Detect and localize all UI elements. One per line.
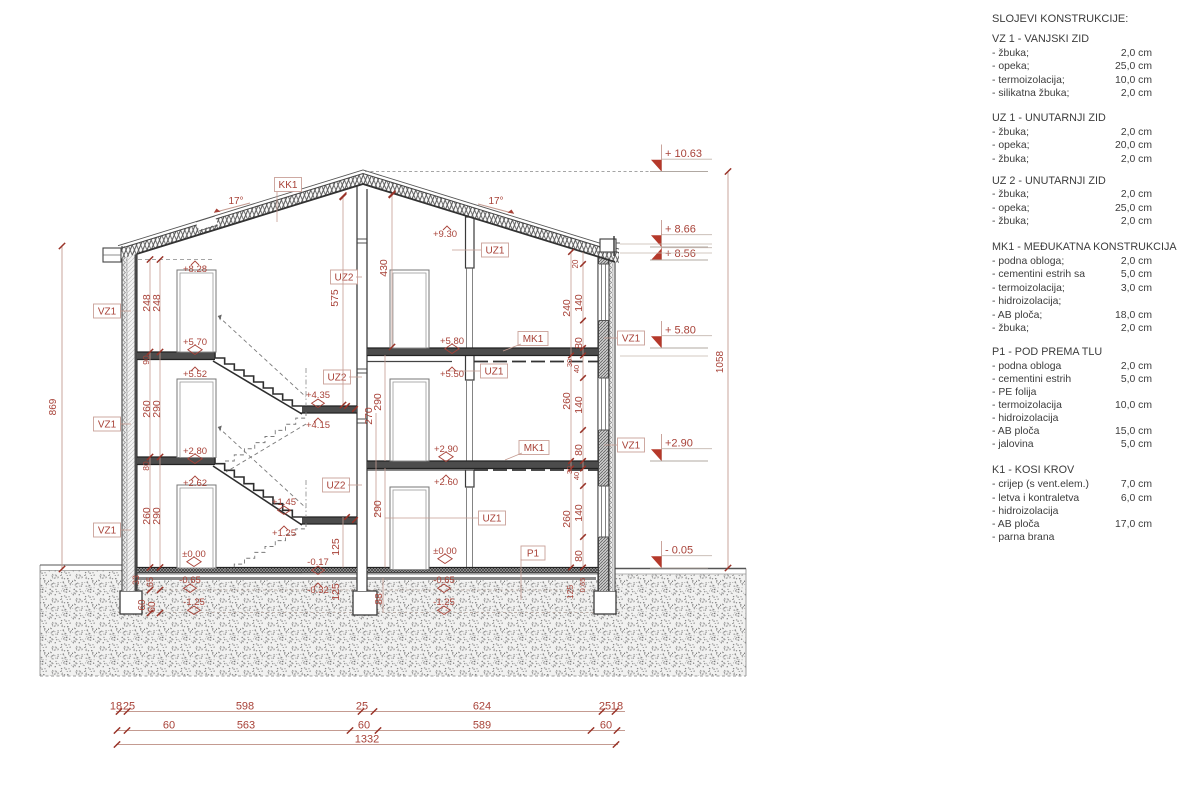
svg-text:248: 248	[151, 294, 163, 312]
svg-text:VZ1: VZ1	[98, 526, 117, 537]
svg-text:- AB ploča;: - AB ploča;	[992, 310, 1042, 321]
svg-text:10,0 cm: 10,0 cm	[1115, 75, 1152, 86]
svg-text:- hidroizolacija;: - hidroizolacija;	[992, 296, 1061, 307]
svg-text:25,0 cm: 25,0 cm	[1115, 203, 1152, 214]
svg-text:UZ 1 - UNUTARNJI ZID: UZ 1 - UNUTARNJI ZID	[992, 112, 1106, 124]
svg-text:- hidroizolacija: - hidroizolacija	[992, 413, 1059, 424]
svg-text:MK1: MK1	[524, 443, 545, 454]
svg-text:80: 80	[573, 444, 585, 456]
svg-text:- žbuka;: - žbuka;	[992, 189, 1029, 200]
svg-text:- AB ploča: - AB ploča	[992, 426, 1040, 437]
svg-text:VZ1: VZ1	[622, 334, 641, 345]
svg-text:140: 140	[573, 396, 585, 414]
svg-text:2,0 cm: 2,0 cm	[1121, 256, 1152, 267]
svg-text:UZ 2 - UNUTARNJI ZID: UZ 2 - UNUTARNJI ZID	[992, 175, 1106, 187]
svg-text:+2.62: +2.62	[183, 478, 207, 489]
svg-text:- opeka;: - opeka;	[992, 203, 1030, 214]
svg-text:25: 25	[123, 701, 135, 713]
svg-text:KK1: KK1	[279, 180, 298, 191]
svg-text:+9.30: +9.30	[433, 229, 457, 240]
svg-text:- 0.05: - 0.05	[665, 545, 693, 557]
svg-text:6,0 cm: 6,0 cm	[1121, 493, 1152, 504]
svg-text:2,0 cm: 2,0 cm	[1121, 361, 1152, 372]
svg-text:290: 290	[372, 500, 384, 518]
svg-text:1058: 1058	[715, 350, 726, 373]
svg-text:UZ1: UZ1	[483, 514, 502, 525]
svg-text:UZ2: UZ2	[328, 373, 347, 384]
svg-text:UZ2: UZ2	[335, 273, 354, 284]
svg-text:5,0 cm: 5,0 cm	[1121, 269, 1152, 280]
svg-text:140: 140	[573, 504, 585, 522]
svg-text:18: 18	[611, 701, 623, 713]
svg-text:290: 290	[372, 393, 384, 411]
svg-text:1332: 1332	[355, 734, 379, 746]
svg-text:80: 80	[141, 461, 151, 471]
svg-text:P1: P1	[527, 549, 540, 560]
svg-text:+2.60: +2.60	[434, 477, 458, 488]
svg-text:10,0 cm: 10,0 cm	[1115, 400, 1152, 411]
svg-text:575: 575	[329, 289, 341, 307]
svg-text:33: 33	[131, 575, 141, 585]
svg-text:- cementini estrih sa: - cementini estrih sa	[992, 269, 1085, 280]
svg-text:260: 260	[561, 392, 573, 410]
svg-text:+4.15: +4.15	[306, 420, 330, 431]
svg-text:- žbuka;: - žbuka;	[992, 154, 1029, 165]
svg-text:- žbuka;: - žbuka;	[992, 127, 1029, 138]
svg-text:2,0 cm: 2,0 cm	[1121, 127, 1152, 138]
svg-text:- termoizolacija;: - termoizolacija;	[992, 75, 1065, 86]
svg-text:VZ1: VZ1	[98, 307, 117, 318]
svg-text:60: 60	[358, 720, 370, 732]
svg-text:20,0 cm: 20,0 cm	[1115, 140, 1152, 151]
svg-text:20: 20	[571, 259, 580, 268]
svg-text:- silikatna žbuka;: - silikatna žbuka;	[992, 88, 1069, 99]
svg-text:+ 10.63: + 10.63	[665, 148, 702, 160]
svg-text:+2.90: +2.90	[434, 444, 458, 455]
svg-text:VZ1: VZ1	[98, 420, 117, 431]
svg-text:- podna obloga: - podna obloga	[992, 361, 1062, 372]
svg-text:2,0 cm: 2,0 cm	[1121, 189, 1152, 200]
svg-text:+ 5.80: + 5.80	[665, 325, 696, 337]
svg-text:- opeka;: - opeka;	[992, 140, 1030, 151]
svg-text:140: 140	[573, 294, 585, 312]
svg-text:- žbuka;: - žbuka;	[992, 216, 1029, 227]
svg-text:K1 - KOSI KROV: K1 - KOSI KROV	[992, 464, 1075, 476]
svg-text:+ 8.66: + 8.66	[665, 224, 696, 236]
svg-text:430: 430	[378, 259, 390, 277]
svg-text:- crijep (s vent.elem.): - crijep (s vent.elem.)	[992, 479, 1089, 490]
svg-text:2,0 cm: 2,0 cm	[1121, 323, 1152, 334]
svg-text:SLOJEVI KONSTRUKCIJE:: SLOJEVI KONSTRUKCIJE:	[992, 13, 1128, 25]
svg-text:0,65: 0,65	[578, 578, 587, 593]
svg-text:290: 290	[151, 507, 163, 525]
svg-text:UZ1: UZ1	[485, 367, 504, 378]
svg-text:2,0 cm: 2,0 cm	[1121, 154, 1152, 165]
svg-text:- žbuka;: - žbuka;	[992, 323, 1029, 334]
svg-text:MK1: MK1	[523, 334, 544, 345]
svg-text:- opeka;: - opeka;	[992, 61, 1030, 72]
svg-text:+1.25: +1.25	[272, 528, 296, 539]
svg-text:- termoizolacija;: - termoizolacija;	[992, 283, 1065, 294]
svg-text:25: 25	[599, 701, 611, 713]
svg-text:+8.28: +8.28	[183, 264, 207, 275]
svg-text:+ 8.56: + 8.56	[665, 248, 696, 260]
svg-text:18,0 cm: 18,0 cm	[1115, 310, 1152, 321]
svg-text:18: 18	[110, 701, 122, 713]
svg-text:80: 80	[573, 550, 585, 562]
svg-text:60: 60	[163, 720, 175, 732]
svg-text:- podna obloga;: - podna obloga;	[992, 256, 1064, 267]
svg-text:563: 563	[237, 720, 255, 732]
svg-text:±0.00: ±0.00	[433, 546, 457, 557]
svg-text:589: 589	[473, 720, 491, 732]
svg-text:+2.90: +2.90	[665, 438, 693, 450]
svg-text:60: 60	[600, 720, 612, 732]
svg-text:+5.70: +5.70	[183, 337, 207, 348]
svg-text:17°: 17°	[488, 196, 503, 207]
svg-text:240: 240	[561, 299, 573, 317]
svg-text:17,0 cm: 17,0 cm	[1115, 519, 1152, 530]
svg-text:125: 125	[565, 585, 575, 599]
svg-text:UZ2: UZ2	[327, 481, 346, 492]
svg-text:90: 90	[141, 355, 151, 365]
svg-text:2,0 cm: 2,0 cm	[1121, 216, 1152, 227]
svg-text:5,0 cm: 5,0 cm	[1121, 439, 1152, 450]
svg-text:UZ1: UZ1	[486, 246, 505, 257]
svg-text:- cementini estrih: - cementini estrih	[992, 374, 1071, 385]
svg-text:+5.50: +5.50	[440, 369, 464, 380]
svg-text:+5.52: +5.52	[183, 369, 207, 380]
svg-text:VZ 1 - VANJSKI ZID: VZ 1 - VANJSKI ZID	[992, 33, 1089, 45]
svg-text:40: 40	[572, 365, 581, 373]
svg-text:125: 125	[330, 538, 342, 556]
svg-text:- žbuka;: - žbuka;	[992, 48, 1029, 59]
svg-text:-0.32: -0.32	[307, 585, 329, 596]
svg-text:- termoizolacija: - termoizolacija	[992, 400, 1062, 411]
svg-text:25: 25	[356, 701, 368, 713]
svg-text:598: 598	[236, 701, 254, 713]
svg-text:7,0 cm: 7,0 cm	[1121, 479, 1152, 490]
svg-text:15,0 cm: 15,0 cm	[1115, 426, 1152, 437]
svg-text:40: 40	[572, 472, 581, 480]
svg-text:869: 869	[48, 398, 59, 415]
svg-text:P1 - POD PREMA TLU: P1 - POD PREMA TLU	[992, 346, 1102, 358]
svg-text:25,0 cm: 25,0 cm	[1115, 61, 1152, 72]
svg-text:2,0 cm: 2,0 cm	[1121, 48, 1152, 59]
svg-text:+2.80: +2.80	[183, 446, 207, 457]
svg-text:65: 65	[145, 577, 155, 587]
svg-text:- AB ploča: - AB ploča	[992, 519, 1040, 530]
svg-text:80: 80	[573, 337, 585, 349]
svg-text:- PE folija: - PE folija	[992, 387, 1037, 398]
svg-text:260: 260	[561, 510, 573, 528]
svg-text:88: 88	[373, 593, 385, 605]
svg-text:- hidroizolacija: - hidroizolacija	[992, 506, 1059, 517]
svg-text:- jalovina: - jalovina	[992, 439, 1034, 450]
svg-text:- letva i kontraletva: - letva i kontraletva	[992, 493, 1079, 504]
svg-text:125: 125	[330, 583, 342, 601]
svg-text:MK1 - MEĐUKATNA KONSTRUKCIJA: MK1 - MEĐUKATNA KONSTRUKCIJA	[992, 241, 1177, 253]
svg-text:624: 624	[473, 701, 491, 713]
svg-text:±0.00: ±0.00	[182, 549, 206, 560]
svg-text:- parna brana: - parna brana	[992, 532, 1055, 543]
svg-text:5,0 cm: 5,0 cm	[1121, 374, 1152, 385]
svg-text:290: 290	[151, 400, 163, 418]
svg-text:2,0 cm: 2,0 cm	[1121, 88, 1152, 99]
svg-text:3,0 cm: 3,0 cm	[1121, 283, 1152, 294]
svg-text:+5.80: +5.80	[440, 336, 464, 347]
svg-text:VZ1: VZ1	[622, 441, 641, 452]
